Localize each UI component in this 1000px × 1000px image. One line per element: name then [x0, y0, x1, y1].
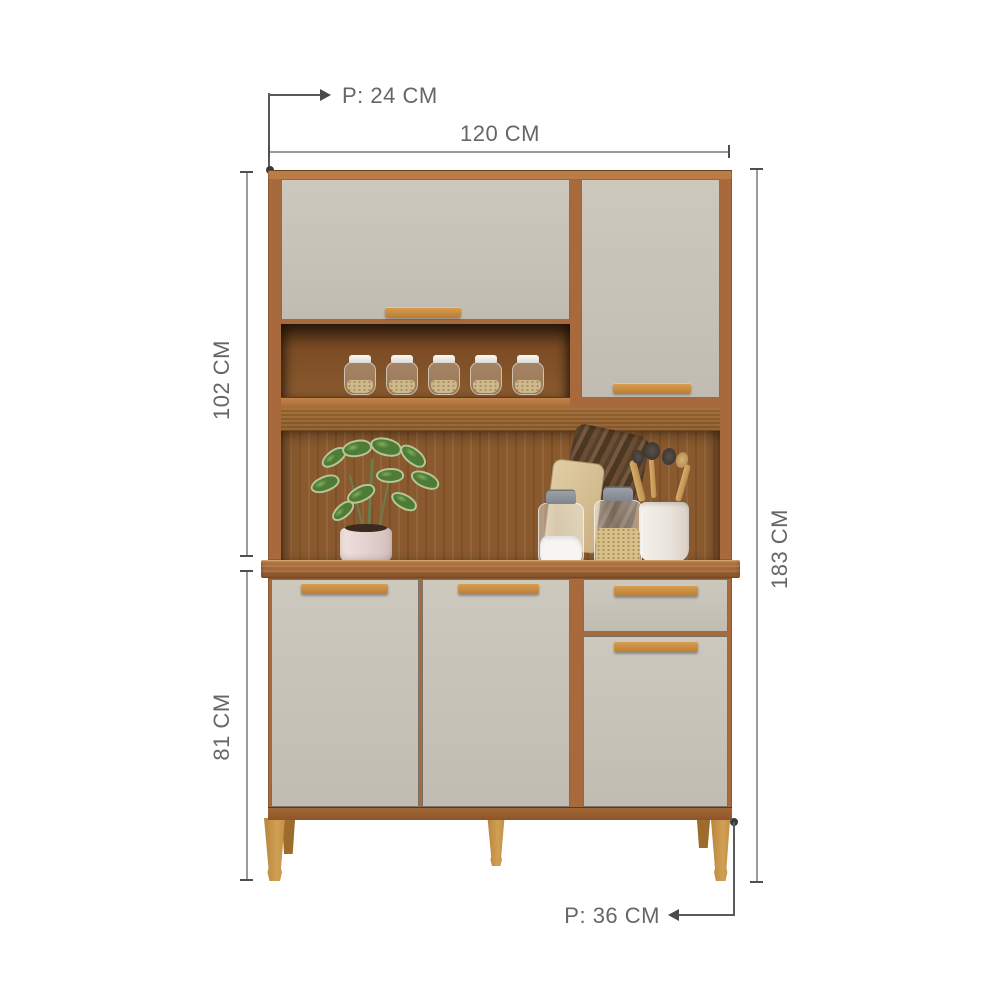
dim-label-width: 120 CM — [270, 121, 730, 147]
plant-pot — [340, 528, 392, 563]
dim-label-bottom-depth: P: 36 CM — [535, 903, 660, 929]
dim-tick-top — [240, 570, 253, 572]
cabinet-leg-front-right — [709, 818, 732, 881]
dim-label-total-height: 183 CM — [767, 479, 793, 619]
dim-line — [246, 571, 248, 881]
lower-left-door-handle — [301, 583, 388, 594]
cabinet-leg-front-left — [262, 818, 287, 881]
plant-leaf — [308, 470, 342, 497]
product-dimension-diagram: P: 24 CM 120 CM 102 CM 81 CM 183 CM P: 3… — [0, 0, 1000, 1000]
utensil-fork — [675, 464, 691, 502]
plant-leaf — [369, 435, 404, 458]
dim-tick-top — [750, 168, 763, 170]
upper-left-door-handle — [385, 307, 461, 317]
plant-leaf — [388, 489, 420, 514]
spice-jar — [428, 361, 460, 395]
dim-label-top-depth: P: 24 CM — [342, 83, 438, 109]
lower-middle-door — [422, 579, 570, 807]
dim-line-horizontal — [268, 94, 320, 96]
dim-arrow-right-icon — [320, 89, 331, 101]
upper-left-door — [281, 179, 570, 320]
countertop — [261, 560, 740, 578]
utensil-crock — [639, 502, 689, 562]
spice-jar — [386, 361, 418, 395]
base-section — [268, 578, 732, 820]
plant-leaf — [408, 467, 442, 492]
dim-tick-bottom — [240, 879, 253, 881]
spice-jar — [512, 361, 544, 395]
dim-tick-left — [268, 145, 270, 158]
potted-plant — [306, 438, 442, 564]
plant-leaf — [340, 436, 373, 460]
canister-oats — [594, 500, 642, 568]
spice-shelf-compartment — [281, 324, 570, 397]
plant-leaf — [396, 441, 430, 471]
plant-leaf — [375, 467, 404, 484]
canister-salt — [538, 503, 584, 566]
niche-top-rail — [281, 408, 720, 431]
dim-line — [246, 172, 248, 557]
cabinet-leg-back-right — [696, 819, 711, 848]
shelf-board — [281, 397, 570, 408]
upper-right-door-handle — [613, 383, 691, 393]
dim-label-upper-height: 102 CM — [209, 310, 235, 450]
dim-tick-bottom — [750, 881, 763, 883]
spice-jar — [470, 361, 502, 395]
drawer-front — [583, 579, 728, 632]
lower-left-door — [271, 579, 419, 807]
drawer-handle — [614, 585, 698, 596]
dim-line-vertical — [733, 822, 735, 915]
upper-right-door — [581, 179, 720, 398]
dim-tick-right — [728, 145, 730, 158]
dim-tick-top — [240, 171, 253, 173]
utensil-dark-spoon — [644, 442, 660, 460]
cabinet-leg-middle — [486, 819, 506, 866]
dim-line — [756, 169, 758, 883]
dim-line — [269, 151, 730, 153]
lower-right-door-handle — [614, 641, 698, 652]
dim-arrow-left-icon — [668, 909, 679, 921]
lower-middle-door-handle — [458, 583, 539, 594]
dim-label-lower-height: 81 CM — [209, 657, 235, 797]
dim-tick-bottom — [240, 555, 253, 557]
dim-line-horizontal — [679, 914, 735, 916]
utensil-set — [630, 442, 696, 508]
spice-jar — [344, 361, 376, 395]
base-bottom-rail — [268, 807, 732, 820]
lower-right-door — [583, 636, 728, 807]
